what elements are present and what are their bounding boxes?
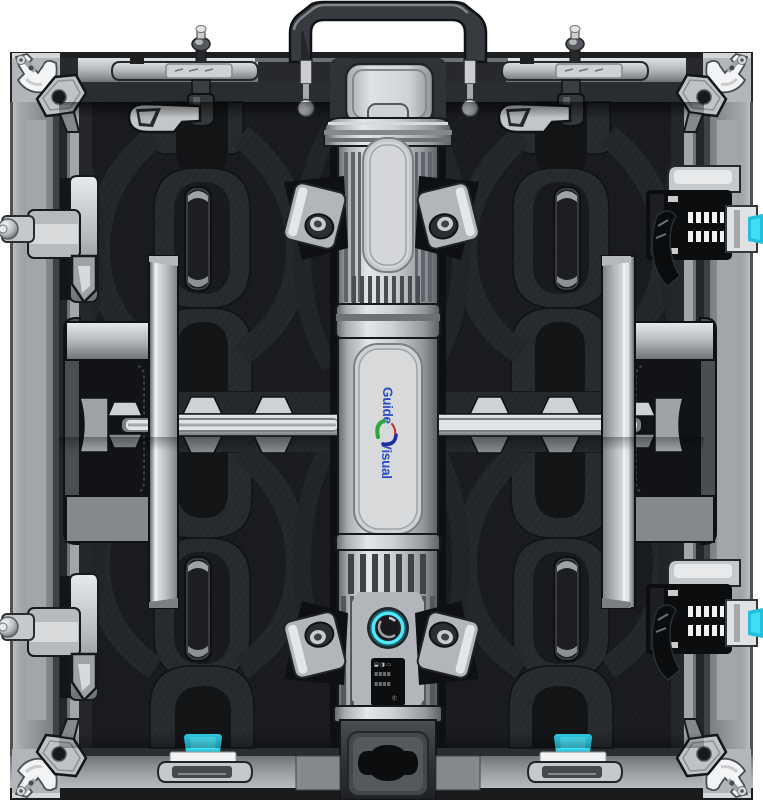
svg-text:Guide: Guide <box>380 387 395 425</box>
svg-text:⬓ ◨ ▭: ⬓ ◨ ▭ <box>374 662 391 668</box>
svg-text:Ⓔ: Ⓔ <box>392 695 397 702</box>
svg-text:Visual: Visual <box>379 441 394 479</box>
